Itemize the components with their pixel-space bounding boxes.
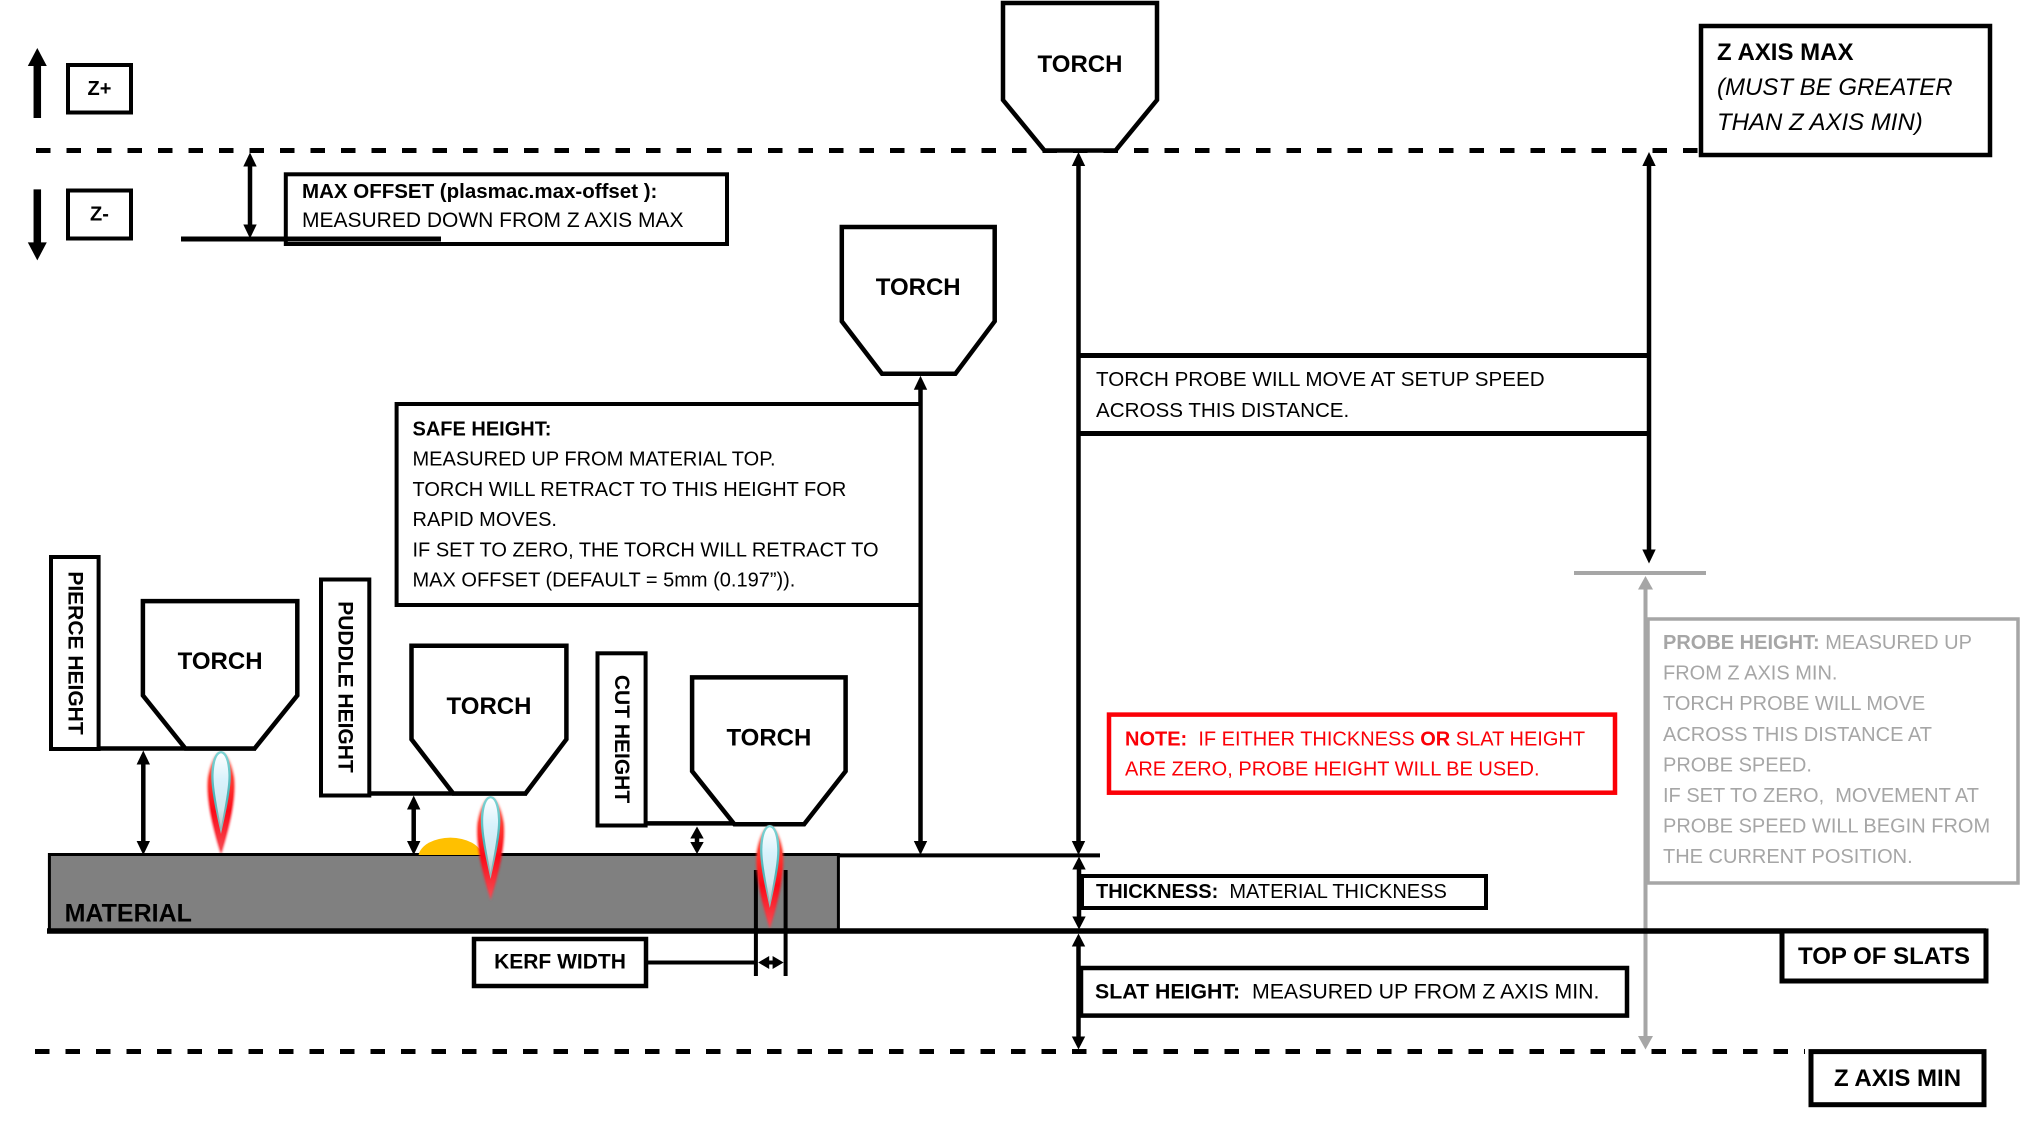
svg-text:PIERCE HEIGHT: PIERCE HEIGHT — [63, 571, 86, 735]
svg-text:Z-: Z- — [90, 204, 109, 226]
svg-text:SLAT HEIGHT: MEASURED UP FROM: SLAT HEIGHT: MEASURED UP FROM Z AXIS MIN… — [1095, 980, 1599, 1004]
svg-text:PUDDLE HEIGHT: PUDDLE HEIGHT — [334, 601, 357, 773]
svg-text:MAX OFFSET (DEFAULT = 5mm (0.1: MAX OFFSET (DEFAULT = 5mm (0.197”)). — [413, 570, 796, 592]
svg-text:ARE ZERO, PROBE HEIGHT WILL BE: ARE ZERO, PROBE HEIGHT WILL BE USED. — [1125, 759, 1540, 781]
svg-text:ACROSS THIS DISTANCE.: ACROSS THIS DISTANCE. — [1096, 399, 1349, 422]
svg-text:TORCH PROBE WILL MOVE: TORCH PROBE WILL MOVE — [1663, 693, 1925, 715]
svg-text:PROBE SPEED WILL BEGIN FROM: PROBE SPEED WILL BEGIN FROM — [1663, 816, 1990, 838]
svg-text:THAN Z AXIS MIN): THAN Z AXIS MIN) — [1717, 109, 1923, 136]
svg-text:IF SET TO ZERO, THE TORCH WILL: IF SET TO ZERO, THE TORCH WILL RETRACT T… — [413, 539, 879, 561]
svg-text:PROBE SPEED.: PROBE SPEED. — [1663, 754, 1812, 776]
svg-text:Z AXIS MIN: Z AXIS MIN — [1834, 1065, 1961, 1092]
svg-text:TORCH: TORCH — [1038, 51, 1123, 78]
svg-text:TORCH: TORCH — [447, 693, 532, 720]
svg-text:TORCH: TORCH — [876, 274, 961, 301]
svg-text:ACROSS THIS DISTANCE AT: ACROSS THIS DISTANCE AT — [1663, 724, 1932, 746]
svg-text:MATERIAL: MATERIAL — [65, 900, 192, 928]
svg-text:TORCH: TORCH — [726, 725, 811, 752]
svg-text:(MUST BE GREATER: (MUST BE GREATER — [1717, 74, 1953, 101]
svg-text:MEASURED DOWN FROM Z AXIS MAX: MEASURED DOWN FROM Z AXIS MAX — [302, 209, 684, 232]
svg-text:Z AXIS MAX: Z AXIS MAX — [1717, 39, 1853, 66]
svg-text:TORCH WILL RETRACT TO THIS HEI: TORCH WILL RETRACT TO THIS HEIGHT FOR — [413, 479, 847, 501]
svg-text:THE CURRENT POSITION.: THE CURRENT POSITION. — [1663, 846, 1913, 868]
svg-text:IF SET TO ZERO, MOVEMENT AT: IF SET TO ZERO, MOVEMENT AT — [1663, 785, 1979, 807]
svg-text:TORCH: TORCH — [178, 648, 263, 675]
svg-text:SAFE HEIGHT:: SAFE HEIGHT: — [413, 418, 552, 440]
svg-text:TOP OF SLATS: TOP OF SLATS — [1798, 943, 1970, 970]
svg-text:MEASURED UP FROM MATERIAL TOP.: MEASURED UP FROM MATERIAL TOP. — [413, 449, 776, 471]
svg-text:PROBE HEIGHT: MEASURED UP: PROBE HEIGHT: MEASURED UP — [1663, 632, 1972, 654]
svg-text:THICKNESS: MATERIAL THICKNESS: THICKNESS: MATERIAL THICKNESS — [1096, 881, 1447, 903]
svg-text:RAPID MOVES.: RAPID MOVES. — [413, 509, 557, 531]
svg-text:KERF WIDTH: KERF WIDTH — [494, 951, 626, 974]
svg-text:NOTE: IF EITHER THICKNESS OR: NOTE: IF EITHER THICKNESS OR SLAT HEIGHT — [1125, 728, 1585, 750]
svg-text:Z+: Z+ — [88, 78, 112, 100]
svg-text:MAX OFFSET (plasmac.max-offset: MAX OFFSET (plasmac.max-offset ): — [302, 180, 657, 203]
svg-text:CUT HEIGHT: CUT HEIGHT — [610, 675, 633, 804]
svg-text:TORCH PROBE WILL MOVE AT SETUP: TORCH PROBE WILL MOVE AT SETUP SPEED — [1096, 368, 1545, 391]
svg-text:FROM Z AXIS MIN.: FROM Z AXIS MIN. — [1663, 663, 1837, 685]
